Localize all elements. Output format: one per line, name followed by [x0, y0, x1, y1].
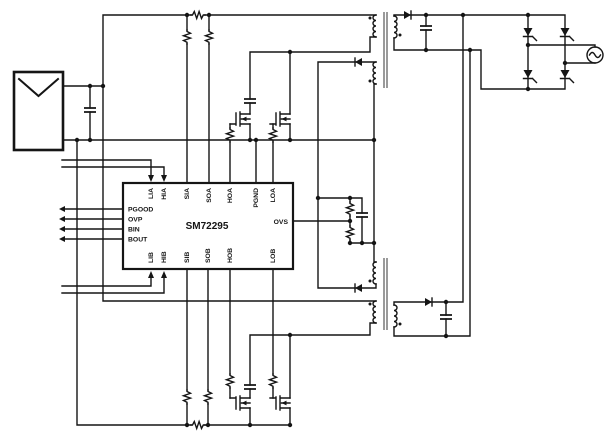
phase-dot: [369, 80, 372, 83]
pin-label-lib: LIB: [148, 252, 155, 263]
pin-label-ovs: OVS: [274, 219, 289, 226]
pin-label-lob: LOB: [270, 249, 277, 263]
circuit-schematic: SM72295 LIA HIA SIA SOA HOA PGND LOA LIB…: [0, 0, 610, 435]
pin-label-sib: SIB: [184, 252, 191, 263]
phase-dot: [369, 17, 372, 20]
pin-label-loa: LOA: [270, 188, 277, 202]
aux-diode-1: [355, 58, 362, 66]
pin-label-bout: BOUT: [128, 237, 148, 244]
scr-top-right: [561, 28, 574, 41]
pin-label-soa: SOA: [206, 188, 213, 203]
shunt-resistor-bottom: [191, 422, 205, 429]
pin-label-bin: BIN: [128, 227, 140, 234]
pin-label-sia: SIA: [184, 188, 191, 199]
phase-dot: [369, 280, 372, 283]
scr-bottom-left: [524, 70, 537, 83]
ic-part-number: SM72295: [186, 221, 229, 232]
phase-dot: [399, 323, 402, 326]
gate-resistor-lob: [270, 374, 277, 388]
mosfet-clamp-a: [230, 112, 250, 126]
phase-dot: [399, 34, 402, 37]
diodes: [355, 11, 432, 306]
scr-top-left: [524, 28, 537, 41]
scr-bottom-right: [561, 70, 574, 83]
pin-label-pgnd: PGND: [253, 188, 260, 208]
sine-icon: [590, 53, 601, 58]
gate-resistor-hob: [227, 374, 234, 388]
mosfet-main-a: [270, 112, 290, 126]
output-diode-1: [404, 11, 411, 19]
schematic-canvas: SM72295 LIA HIA SIA SOA HOA PGND LOA LIB…: [0, 0, 610, 435]
arrow-lia: [148, 175, 154, 182]
solar-panel: [14, 72, 63, 150]
ovs-divider-upper: [347, 202, 354, 216]
pin-label-hoa: HOA: [227, 188, 234, 203]
ac-source: [587, 47, 603, 63]
arrow-ovp: [59, 216, 65, 222]
arrow-pgood: [59, 206, 65, 212]
transformer-2: [369, 258, 402, 330]
output-diode-2: [425, 298, 432, 306]
pin-label-sob: SOB: [205, 248, 212, 263]
scr-bridge: [524, 28, 574, 83]
arrow-bout: [59, 236, 65, 242]
mosfet-main-b: [270, 396, 290, 410]
phase-dot: [369, 303, 372, 306]
shunt-resistor-top: [191, 12, 205, 19]
arrow-lib: [148, 271, 154, 278]
ic-sm72295: SM72295 LIA HIA SIA SOA HOA PGND LOA LIB…: [123, 183, 293, 269]
pin-label-lia: LIA: [148, 188, 155, 199]
pin-label-hob: HOB: [227, 248, 234, 263]
aux-diode-2: [355, 284, 362, 292]
pin-label-pgood: PGOOD: [128, 207, 153, 214]
arrow-bin: [59, 226, 65, 232]
ovs-divider-lower: [347, 226, 354, 240]
pin-label-hia: HIA: [161, 188, 168, 200]
pin-label-ovp: OVP: [128, 217, 143, 224]
mosfet-clamp-b: [230, 396, 250, 410]
pin-label-hib: HIB: [161, 251, 168, 263]
arrow-hib: [161, 271, 167, 278]
arrow-hia: [161, 175, 167, 182]
